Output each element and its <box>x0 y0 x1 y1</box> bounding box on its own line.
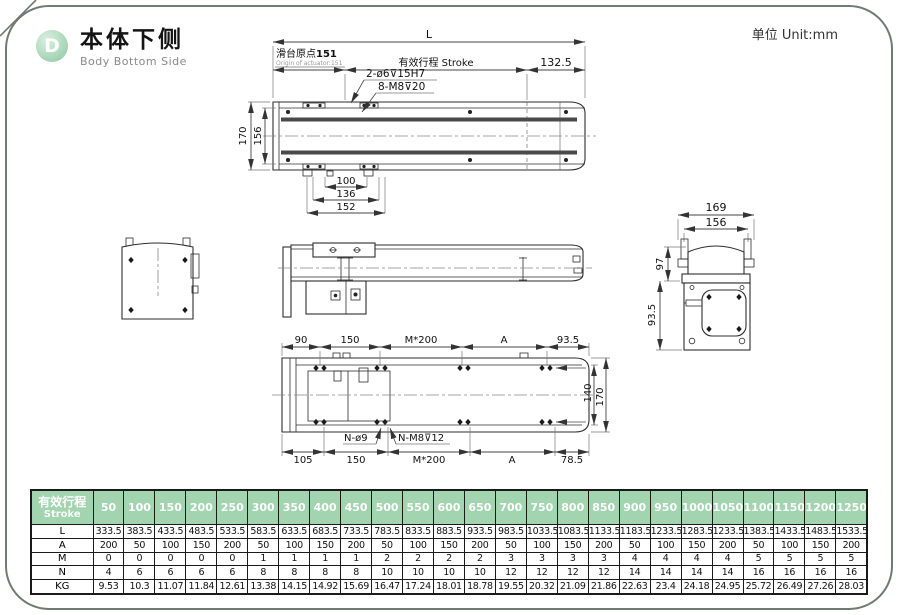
table-cell: 21.86 <box>588 580 619 594</box>
table-cell: 1 <box>248 552 279 566</box>
table-cell: 483.5 <box>186 525 217 539</box>
table-cell: 50 <box>124 538 155 552</box>
table-cell: 1 <box>279 552 310 566</box>
stroke-header-cell: 800 <box>557 490 588 525</box>
table-cell: 50 <box>743 538 774 552</box>
table-cell: 333.5 <box>93 525 124 539</box>
table-cell: 18.01 <box>433 580 464 594</box>
table-cell: 18.78 <box>464 580 495 594</box>
table-cell: 10 <box>403 566 434 580</box>
table-cell: 200 <box>341 538 372 552</box>
right-end-view: 169 156 97 93.5 <box>647 201 754 350</box>
dim-93-5-top: 93.5 <box>557 335 579 346</box>
dim-100: 100 <box>336 176 355 187</box>
table-cell: 16 <box>774 566 805 580</box>
origin-label: 滑台原点 <box>276 47 316 60</box>
table-cell: 783.5 <box>372 525 403 539</box>
table-cell: 26.49 <box>774 580 805 594</box>
dim-150-top: 150 <box>340 335 359 346</box>
dim-93-5: 93.5 <box>647 304 658 326</box>
table-cell: 4 <box>93 566 124 580</box>
table-cell: 1483.5 <box>805 525 836 539</box>
table-cell: 933.5 <box>464 525 495 539</box>
table-cell: 5 <box>836 552 867 566</box>
dim-169: 169 <box>706 201 727 214</box>
table-cell: 100 <box>774 538 805 552</box>
table-cell: 200 <box>464 538 495 552</box>
stroke-header-cell: 1000 <box>681 490 712 525</box>
dim-90: 90 <box>295 335 308 346</box>
table-cell: 16.47 <box>372 580 403 594</box>
table-cell: 1133.5 <box>588 525 619 539</box>
stroke-header-cell: 250 <box>217 490 248 525</box>
stroke-header-cell: 700 <box>495 490 526 525</box>
left-end-view <box>122 238 199 319</box>
table-cell: 2 <box>464 552 495 566</box>
table-cell: 14 <box>681 566 712 580</box>
table-cell: 150 <box>186 538 217 552</box>
hole-note-1: 2-ø6⊽15H7 <box>366 68 425 80</box>
table-cell: 733.5 <box>341 525 372 539</box>
table-cell: 0 <box>217 552 248 566</box>
table-row: KG9.5310.311.0711.8412.6113.3814.1514.92… <box>31 580 867 594</box>
table-cell: 633.5 <box>279 525 310 539</box>
table-row: L333.5383.5433.5483.5533.5583.5633.5683.… <box>31 525 867 539</box>
hole-note-nm8: N-M8⊽12 <box>398 433 444 444</box>
dim-156-end: 156 <box>706 216 727 229</box>
table-cell: 683.5 <box>310 525 341 539</box>
table-cell: 5 <box>774 552 805 566</box>
side-view <box>278 243 592 317</box>
stroke-header-cell: 850 <box>588 490 619 525</box>
table-cell: 100 <box>279 538 310 552</box>
table-cell: 10 <box>433 566 464 580</box>
stroke-header-cell: 200 <box>186 490 217 525</box>
dim-m200-bottom: M*200 <box>413 455 446 466</box>
table-cell: 1033.5 <box>526 525 557 539</box>
table-cell: 100 <box>526 538 557 552</box>
origin-note: 滑台原点151 <box>276 47 337 60</box>
top-view: L 滑台原点151 Origin of actuator:151 有效行程 St… <box>238 28 596 213</box>
dim-152: 152 <box>336 202 355 213</box>
table-cell: 1233.5 <box>650 525 681 539</box>
dim-150-bottom: 150 <box>346 455 365 466</box>
table-cell: 5 <box>743 552 774 566</box>
row-label: M <box>31 552 93 566</box>
table-cell: 100 <box>650 538 681 552</box>
table-cell: 22.63 <box>619 580 650 594</box>
table-cell: 100 <box>155 538 186 552</box>
table-cell: 25.72 <box>743 580 774 594</box>
table-cell: 0 <box>155 552 186 566</box>
table-cell: 1233.5 <box>712 525 743 539</box>
corner-cut-line <box>0 0 36 36</box>
table-cell: 1383.5 <box>743 525 774 539</box>
table-cell: 383.5 <box>124 525 155 539</box>
table-cell: 1 <box>341 552 372 566</box>
stroke-table-wrapper: 有效行程Stroke501001502002503003504004505005… <box>30 489 868 595</box>
table-cell: 16 <box>805 566 836 580</box>
table-cell: 6 <box>155 566 186 580</box>
table-cell: 15.69 <box>341 580 372 594</box>
table-cell: 20.32 <box>526 580 557 594</box>
row-label: N <box>31 566 93 580</box>
table-cell: 8 <box>248 566 279 580</box>
stroke-header-cell: 900 <box>619 490 650 525</box>
table-cell: 150 <box>805 538 836 552</box>
table-cell: 150 <box>433 538 464 552</box>
dim-170-bottom: 170 <box>595 387 606 406</box>
table-cell: 100 <box>403 538 434 552</box>
table-cell: 8 <box>310 566 341 580</box>
table-cell: 3 <box>526 552 557 566</box>
table-cell: 50 <box>372 538 403 552</box>
table-cell: 533.5 <box>217 525 248 539</box>
table-cell: 8 <box>341 566 372 580</box>
stroke-header-cell: 1150 <box>774 490 805 525</box>
table-cell: 1533.5 <box>836 525 867 539</box>
table-cell: 10 <box>372 566 403 580</box>
stroke-header-cell: 650 <box>464 490 495 525</box>
table-cell: 1083.5 <box>557 525 588 539</box>
dim-136: 136 <box>336 189 355 200</box>
stroke-header-cell: 150 <box>155 490 186 525</box>
table-cell: 1 <box>310 552 341 566</box>
table-cell: 200 <box>712 538 743 552</box>
table-cell: 4 <box>681 552 712 566</box>
stroke-header-cell: 350 <box>279 490 310 525</box>
table-cell: 3 <box>557 552 588 566</box>
table-cell: 24.95 <box>712 580 743 594</box>
row-label: A <box>31 538 93 552</box>
table-cell: 2 <box>433 552 464 566</box>
stroke-header-cell: 300 <box>248 490 279 525</box>
hole-note-n9: N-ø9 <box>344 433 368 444</box>
dim-105: 105 <box>293 455 312 466</box>
table-cell: 2 <box>372 552 403 566</box>
dim-A-top: A <box>501 335 508 346</box>
table-cell: 14 <box>712 566 743 580</box>
table-cell: 200 <box>93 538 124 552</box>
stroke-header-cell: 550 <box>403 490 434 525</box>
stroke-header-cell: 1200 <box>805 490 836 525</box>
stroke-header-cell: 100 <box>124 490 155 525</box>
table-cell: 200 <box>588 538 619 552</box>
table-cell: 10.3 <box>124 580 155 594</box>
row-label: KG <box>31 580 93 594</box>
table-cell: 19.55 <box>495 580 526 594</box>
table-cell: 16 <box>836 566 867 580</box>
stroke-header-cell: 450 <box>341 490 372 525</box>
table-cell: 150 <box>310 538 341 552</box>
table-row: N466668888101010101212121214141414161616… <box>31 566 867 580</box>
stroke-header-cell: 1250 <box>836 490 867 525</box>
row-label: L <box>31 525 93 539</box>
dim-170: 170 <box>238 126 249 145</box>
origin-sub-note: Origin of actuator:151 <box>276 60 343 67</box>
table-cell: 6 <box>217 566 248 580</box>
table-cell: 12 <box>526 566 557 580</box>
bottom-view: 90 150 M*200 A 93.5 105 150 M*200 A 78.5… <box>272 335 610 466</box>
hole-note-2: 8-M8⊽20 <box>378 81 425 93</box>
table-cell: 2 <box>403 552 434 566</box>
table-cell: 50 <box>619 538 650 552</box>
table-cell: 11.84 <box>186 580 217 594</box>
stroke-header-cell: 600 <box>433 490 464 525</box>
table-cell: 24.18 <box>681 580 712 594</box>
stroke-header-cell: 1100 <box>743 490 774 525</box>
dim-140: 140 <box>583 383 594 402</box>
table-cell: 1183.5 <box>619 525 650 539</box>
stroke-table-body: L333.5383.5433.5483.5533.5583.5633.5683.… <box>31 525 867 594</box>
table-cell: 200 <box>836 538 867 552</box>
table-cell: 12.61 <box>217 580 248 594</box>
table-cell: 983.5 <box>495 525 526 539</box>
table-cell: 12 <box>588 566 619 580</box>
table-cell: 1433.5 <box>774 525 805 539</box>
stroke-table-head: 有效行程Stroke501001502002503003504004505005… <box>31 490 867 525</box>
table-cell: 12 <box>495 566 526 580</box>
table-cell: 13.38 <box>248 580 279 594</box>
table-cell: 4 <box>712 552 743 566</box>
stroke-table: 有效行程Stroke501001502002503003504004505005… <box>30 489 868 595</box>
table-cell: 3 <box>495 552 526 566</box>
table-cell: 14 <box>650 566 681 580</box>
table-cell: 14.92 <box>310 580 341 594</box>
stroke-header-cell: 50 <box>93 490 124 525</box>
stroke-header-label: 有效行程Stroke <box>31 490 93 525</box>
dim-L: L <box>426 28 433 41</box>
table-cell: 433.5 <box>155 525 186 539</box>
stroke-header-cell: 750 <box>526 490 557 525</box>
table-cell: 16 <box>743 566 774 580</box>
table-cell: 28.03 <box>836 580 867 594</box>
dim-A-bottom: A <box>509 455 516 466</box>
table-cell: 10 <box>464 566 495 580</box>
dim-156-top: 156 <box>253 126 264 145</box>
table-cell: 8 <box>279 566 310 580</box>
table-cell: 21.09 <box>557 580 588 594</box>
table-cell: 0 <box>93 552 124 566</box>
table-cell: 1283.5 <box>681 525 712 539</box>
stroke-header-cell: 500 <box>372 490 403 525</box>
table-cell: 6 <box>124 566 155 580</box>
dim-m200-top: M*200 <box>405 335 438 346</box>
table-cell: 27.26 <box>805 580 836 594</box>
table-cell: 50 <box>248 538 279 552</box>
table-cell: 4 <box>619 552 650 566</box>
table-cell: 11.07 <box>155 580 186 594</box>
table-cell: 833.5 <box>403 525 434 539</box>
dim-132-5: 132.5 <box>540 56 572 69</box>
stroke-header-cell: 1050 <box>712 490 743 525</box>
table-cell: 23.4 <box>650 580 681 594</box>
table-cell: 883.5 <box>433 525 464 539</box>
dim-78-5: 78.5 <box>561 455 583 466</box>
table-cell: 5 <box>805 552 836 566</box>
table-cell: 150 <box>681 538 712 552</box>
table-cell: 14 <box>619 566 650 580</box>
table-cell: 150 <box>557 538 588 552</box>
table-cell: 4 <box>650 552 681 566</box>
table-cell: 583.5 <box>248 525 279 539</box>
table-cell: 9.53 <box>93 580 124 594</box>
origin-value: 151 <box>316 49 337 60</box>
table-cell: 17.24 <box>403 580 434 594</box>
table-cell: 50 <box>495 538 526 552</box>
table-row: M0000011112222333344445555 <box>31 552 867 566</box>
table-row: A200501001502005010015020050100150200501… <box>31 538 867 552</box>
table-cell: 0 <box>124 552 155 566</box>
spec-sheet-page: D 本体下侧 Body Bottom Side 单位 Unit:mm <box>0 0 898 615</box>
table-cell: 200 <box>217 538 248 552</box>
stroke-header-cell: 400 <box>310 490 341 525</box>
table-cell: 14.15 <box>279 580 310 594</box>
table-cell: 0 <box>186 552 217 566</box>
table-cell: 12 <box>557 566 588 580</box>
table-cell: 3 <box>588 552 619 566</box>
table-cell: 6 <box>186 566 217 580</box>
dim-97: 97 <box>655 258 666 271</box>
stroke-header-cell: 950 <box>650 490 681 525</box>
